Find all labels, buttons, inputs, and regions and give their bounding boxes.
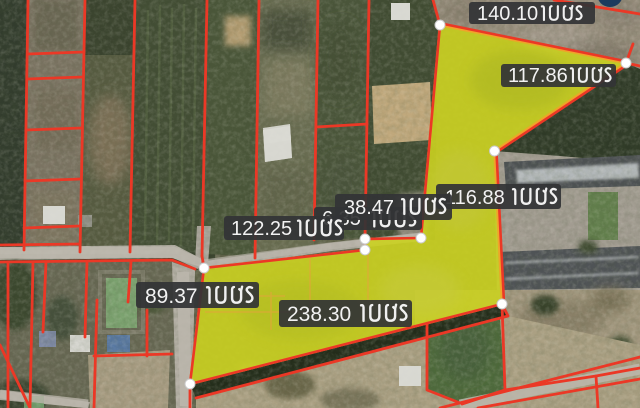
svg-text:238.30: 238.30 — [287, 303, 351, 326]
svg-text:38.47: 38.47 — [344, 197, 394, 219]
svg-text:89.37: 89.37 — [145, 285, 198, 308]
svg-text:122.25: 122.25 — [231, 218, 292, 240]
svg-text:117.86: 117.86 — [508, 65, 568, 87]
svg-text:140.10: 140.10 — [477, 3, 538, 25]
svg-text:116.88: 116.88 — [445, 187, 505, 209]
